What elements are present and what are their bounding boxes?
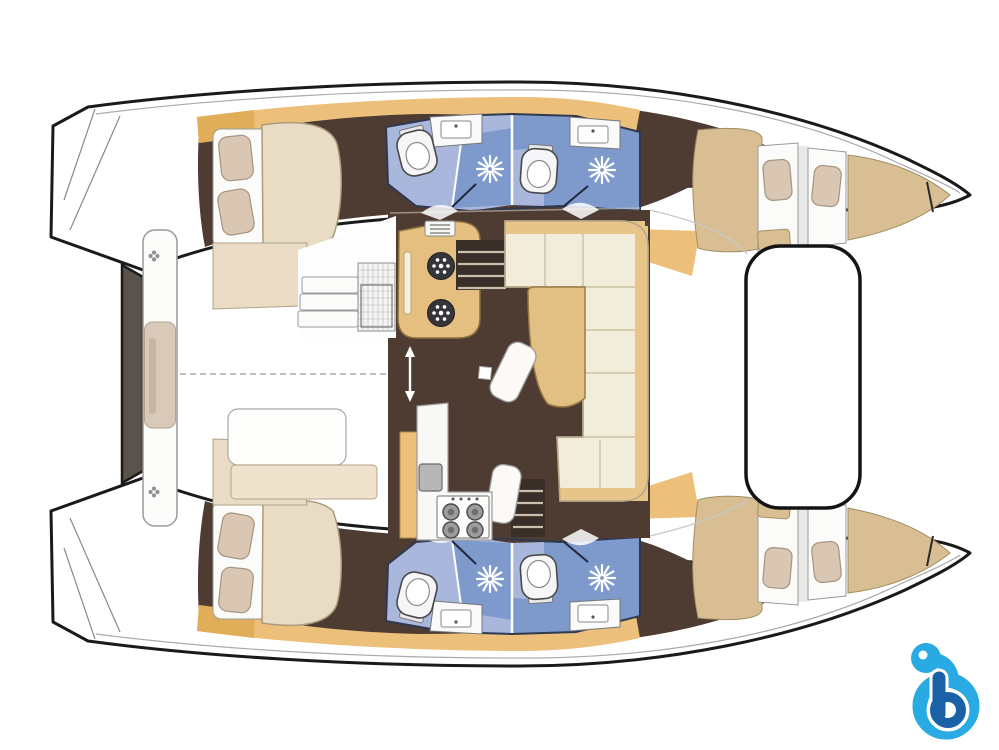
- sink-appliance: [419, 464, 442, 491]
- watermark-logo: Blue letter b watermark logo: [911, 643, 972, 732]
- starboard-cabin-panels: [228, 409, 377, 499]
- stairs-port: Companionway steps down to hull: [456, 240, 508, 290]
- grid-hatch: [358, 263, 395, 331]
- aft-crossbeam-panel: [122, 265, 143, 483]
- boat-layout-diagram: Catamaran interior layout plan: [0, 0, 999, 750]
- table-leg: [478, 366, 491, 379]
- boat-layout-page: Catamaran interior layout plan: [0, 0, 999, 750]
- cockpit-bench: Aft cockpit bench: [143, 230, 177, 526]
- bench-slot: [149, 338, 156, 414]
- corridor-steps: [298, 277, 358, 327]
